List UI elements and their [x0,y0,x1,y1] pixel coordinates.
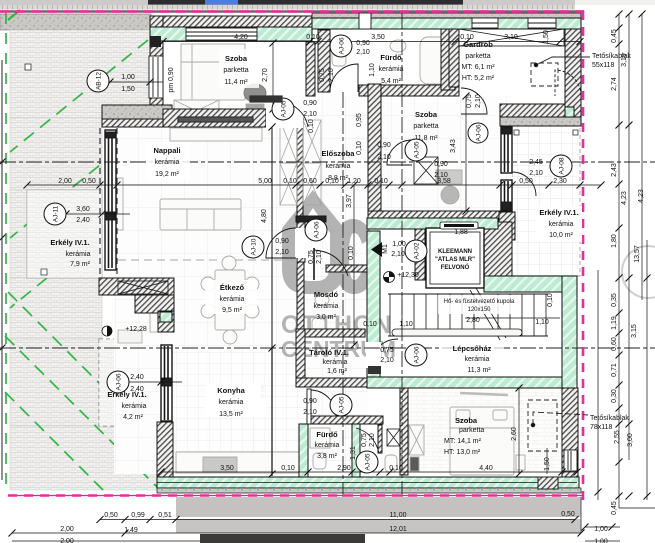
svg-text:0,50: 0,50 [82,178,96,185]
svg-text:11,3 m²: 11,3 m² [467,367,491,374]
svg-text:AJ-02: AJ-02 [414,242,421,259]
svg-text:FELVONÓ: FELVONÓ [441,263,470,271]
svg-text:Fürdő: Fürdő [316,430,338,439]
svg-text:2,10: 2,10 [529,170,543,177]
svg-text:3,8 m²: 3,8 m² [317,453,338,460]
svg-text:1,00: 1,00 [121,74,135,81]
svg-text:kerámia: kerámia [314,303,339,310]
svg-text:0,35: 0,35 [611,293,618,307]
svg-text:0,10: 0,10 [308,119,315,133]
svg-text:AJ-05: AJ-05 [339,396,346,413]
svg-text:kerámia: kerámia [220,296,245,303]
svg-text:kerámia: kerámia [219,399,244,406]
svg-text:0,75: 0,75 [308,250,315,264]
svg-text:kerámia: kerámia [549,221,574,228]
svg-text:1,88: 1,88 [454,229,468,236]
svg-text:0,50: 0,50 [519,178,533,185]
svg-text:0,95: 0,95 [356,113,363,127]
svg-text:+12,30: +12,30 [397,272,419,279]
svg-text:Konyha: Konyha [217,386,245,395]
svg-text:0,51: 0,51 [158,512,172,519]
svg-text:AB-12: AB-12 [96,72,103,90]
svg-text:2,10: 2,10 [275,249,289,256]
svg-text:2,70: 2,70 [262,68,269,82]
svg-text:0,90: 0,90 [434,161,448,168]
svg-text:kerámia: kerámia [315,442,340,449]
svg-text:Előszoba: Előszoba [322,149,356,158]
svg-text:2,00: 2,00 [60,526,74,533]
svg-text:3,15: 3,15 [631,324,638,338]
svg-text:1,31: 1,31 [350,446,357,460]
svg-text:0,10: 0,10 [348,246,355,260]
svg-text:Tetősíkablak: Tetősíkablak [590,415,629,422]
svg-text:55x118: 55x118 [592,62,615,69]
svg-text:11,4 m²: 11,4 m² [224,79,248,86]
svg-text:KLEEMANN: KLEEMANN [438,249,472,255]
svg-text:Fürdő: Fürdő [380,53,402,62]
svg-text:1,19: 1,19 [611,316,618,330]
svg-text:0,60: 0,60 [611,337,618,351]
svg-text:1,49: 1,49 [124,527,138,534]
svg-text:3,58: 3,58 [437,178,451,185]
svg-text:19,2 m²: 19,2 m² [155,171,179,178]
svg-text:5,4 m²: 5,4 m² [381,78,402,85]
svg-text:5,00: 5,00 [258,178,272,185]
svg-text:M1: M1 [382,244,389,254]
svg-text:0,10: 0,10 [389,465,403,472]
svg-text:2,80: 2,80 [466,317,480,324]
svg-text:0,10: 0,10 [547,293,554,307]
svg-text:0,10: 0,10 [281,465,295,472]
svg-text:kerámia: kerámia [155,159,180,166]
svg-text:0,75: 0,75 [466,94,473,108]
svg-text:AJ-05: AJ-05 [414,141,421,158]
svg-text:AJ-06: AJ-06 [476,124,483,141]
svg-text:8,8 m²: 8,8 m² [328,175,349,182]
svg-text:1,10: 1,10 [399,321,413,328]
svg-text:11,00: 11,00 [390,512,407,519]
svg-text:Hő- és füstelvezető kupola: Hő- és füstelvezető kupola [444,299,515,305]
svg-text:2,00: 2,00 [60,538,74,543]
svg-text:1,00: 1,00 [392,241,406,248]
svg-text:4,20: 4,20 [234,34,248,41]
svg-text:0,50: 0,50 [561,511,575,518]
svg-text:2,45: 2,45 [529,159,543,166]
svg-text:HT: 13,0 m²: HT: 13,0 m² [444,449,481,456]
svg-text:0,75: 0,75 [361,433,368,447]
svg-text:2,00: 2,00 [58,178,72,185]
svg-text:2,40: 2,40 [76,217,90,224]
svg-text:2,10: 2,10 [475,94,482,108]
svg-text:+12,28: +12,28 [125,326,147,333]
svg-text:kerámia: kerámia [66,251,91,258]
svg-text:0,45: 0,45 [611,501,618,515]
svg-text:1,80: 1,80 [611,234,618,248]
svg-text:parketta: parketta [413,123,438,130]
svg-text:2,10: 2,10 [369,433,376,447]
svg-text:10,0 m²: 10,0 m² [549,232,573,239]
svg-text:0,90: 0,90 [377,142,391,149]
svg-text:1,20: 1,20 [347,178,361,185]
svg-text:3,50: 3,50 [220,465,234,472]
svg-text:"ATLAS MLR": "ATLAS MLR" [435,257,475,263]
svg-text:parketta: parketta [459,427,484,434]
svg-text:1,10: 1,10 [369,63,376,77]
svg-text:Tároló IV.1.: Tároló IV.1. [309,348,349,357]
svg-text:MT: 6,1 m²: MT: 6,1 m² [461,64,495,71]
svg-text:2,40: 2,40 [130,374,144,381]
svg-text:9,5 m²: 9,5 m² [222,307,243,314]
svg-text:4,23: 4,23 [621,191,628,205]
svg-text:MT: 14,1 m²: MT: 14,1 m² [444,438,482,445]
svg-text:2,10: 2,10 [434,172,448,179]
svg-text:AJ-05: AJ-05 [365,453,372,470]
svg-text:kerámia: kerámia [326,163,351,170]
svg-text:Szoba: Szoba [225,54,248,63]
svg-text:0,45: 0,45 [611,29,618,43]
svg-text:1,50: 1,50 [544,457,551,471]
svg-text:13,5 m²: 13,5 m² [219,411,243,418]
svg-text:2,43: 2,43 [611,163,618,177]
svg-text:0,90: 0,90 [303,100,317,107]
svg-text:1,10: 1,10 [535,319,549,326]
svg-text:Nappali: Nappali [153,146,180,155]
svg-text:2,30: 2,30 [553,178,567,185]
svg-text:0,90: 0,90 [275,238,289,245]
svg-text:Lépcsőház: Lépcsőház [453,344,492,353]
svg-text:1,50: 1,50 [121,86,135,93]
svg-text:4,80: 4,80 [261,209,268,223]
svg-text:2,10: 2,10 [356,49,370,56]
svg-text:Erkély IV.1.: Erkély IV.1. [539,208,578,217]
svg-text:HT: 5,2 m²: HT: 5,2 m² [462,75,495,82]
svg-text:Szoba: Szoba [455,416,478,425]
svg-text:2,10: 2,10 [303,111,317,118]
svg-text:Mosdó: Mosdó [314,290,339,299]
svg-text:Szoba: Szoba [415,110,438,119]
svg-text:12,01: 12,01 [389,526,407,533]
svg-text:kerámia: kerámia [465,356,490,363]
svg-text:AJ-06: AJ-06 [414,346,421,363]
svg-text:2,90: 2,90 [337,465,351,472]
svg-text:AJ-06: AJ-06 [339,37,346,54]
svg-text:0,71: 0,71 [611,363,618,377]
svg-text:0,90: 0,90 [356,40,370,47]
svg-text:7,9 m²: 7,9 m² [70,261,91,268]
svg-text:0,30: 0,30 [611,389,618,403]
svg-text:3,97: 3,97 [346,194,353,208]
svg-text:13,57: 13,57 [634,245,641,263]
svg-text:0,10: 0,10 [356,141,363,155]
svg-text:0,99: 0,99 [131,512,145,519]
svg-text:3,0 m²: 3,0 m² [316,314,337,321]
svg-text:kerámia: kerámia [122,403,147,410]
svg-text:Gardrób: Gardrób [463,40,493,49]
svg-text:78x118: 78x118 [590,424,613,431]
svg-text:kerámia: kerámia [323,359,348,366]
svg-text:0,10: 0,10 [283,178,297,185]
svg-text:2,10: 2,10 [391,251,405,258]
svg-text:4,23: 4,23 [638,189,645,203]
svg-text:0,75: 0,75 [380,347,394,354]
svg-text:2,55: 2,55 [614,430,621,444]
svg-text:3,00: 3,00 [627,433,634,447]
svg-text:0,50: 0,50 [104,512,118,519]
svg-text:2,10: 2,10 [380,357,394,364]
svg-text:2,10: 2,10 [316,250,323,264]
svg-text:2,10: 2,10 [377,154,391,161]
svg-text:AJ-05: AJ-05 [281,100,288,117]
svg-text:AJ-11: AJ-11 [53,205,60,222]
svg-text:AJ-10: AJ-10 [251,238,258,255]
svg-text:2,74: 2,74 [611,77,618,91]
svg-text:AJ-06: AJ-06 [314,221,321,238]
svg-text:0,10: 0,10 [363,321,377,328]
svg-text:0,10: 0,10 [306,34,320,41]
svg-text:1,6 m²: 1,6 m² [327,368,348,375]
svg-text:AJ-06: AJ-06 [116,373,123,390]
svg-text:3,50: 3,50 [371,34,385,41]
svg-text:pm 0,90: pm 0,90 [168,67,175,92]
svg-text:Erkély IV.1.: Erkély IV.1. [50,238,89,247]
svg-text:2,60: 2,60 [511,427,518,441]
svg-text:parketta: parketta [465,53,490,60]
svg-text:0,75: 0,75 [319,68,326,82]
svg-text:2,10: 2,10 [303,409,317,416]
svg-text:AJ-08: AJ-08 [559,157,566,174]
svg-text:0,10: 0,10 [374,178,388,185]
svg-text:3,60: 3,60 [76,206,90,213]
svg-text:3,43: 3,43 [450,139,457,153]
svg-text:1,00: 1,00 [594,526,608,533]
svg-text:parketta: parketta [223,67,248,74]
svg-text:3,10: 3,10 [504,34,518,41]
svg-text:Tetősíkablak: Tetősíkablak [592,53,631,60]
svg-text:kerámia: kerámia [379,66,404,73]
svg-text:4,2 m²: 4,2 m² [123,414,144,421]
svg-text:2,10: 2,10 [328,68,335,82]
svg-text:Étkező: Étkező [220,283,245,292]
svg-text:0,90: 0,90 [303,398,317,405]
svg-text:4,40: 4,40 [479,465,493,472]
svg-text:120x150: 120x150 [467,307,491,313]
svg-text:1,50: 1,50 [543,30,550,44]
svg-text:1,00: 1,00 [594,539,608,543]
svg-text:0,60: 0,60 [303,178,317,185]
